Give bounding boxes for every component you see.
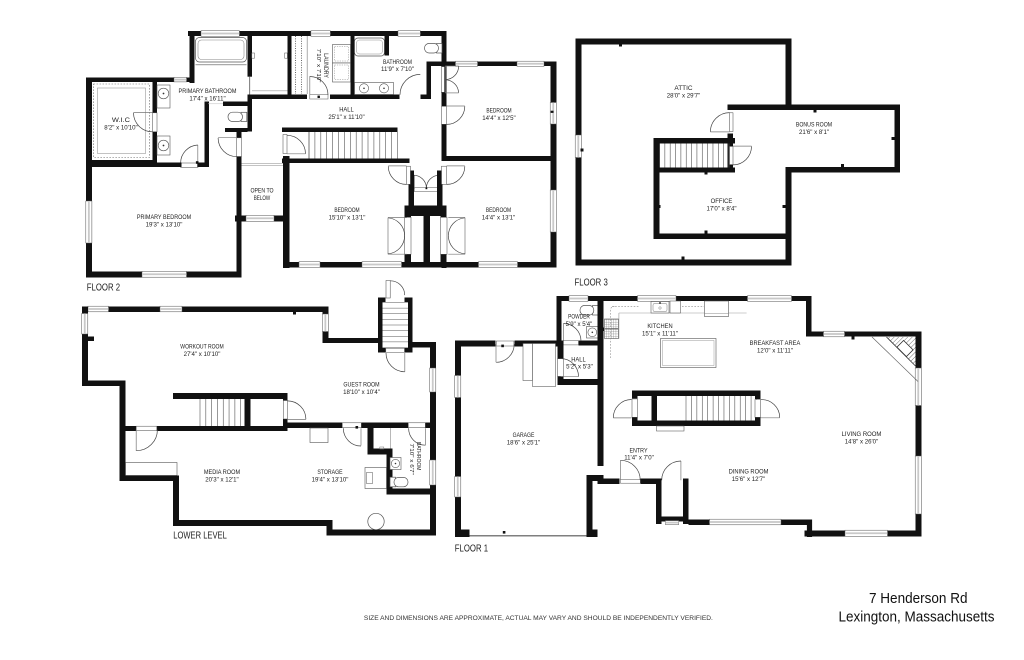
svg-text:7'10" x 7'10": 7'10" x 7'10" <box>315 49 321 83</box>
svg-text:19'3" x 13'10": 19'3" x 13'10" <box>146 222 183 229</box>
svg-text:PRIMARY BATHROOM: PRIMARY BATHROOM <box>179 88 237 95</box>
svg-text:20'3" x 12'1": 20'3" x 12'1" <box>205 477 238 484</box>
svg-text:DINING ROOM: DINING ROOM <box>729 469 769 476</box>
svg-text:7'10" x 6'7": 7'10" x 6'7" <box>408 444 414 475</box>
svg-text:5'9" x 5'4": 5'9" x 5'4" <box>566 321 593 328</box>
svg-text:14'4" x 13'1": 14'4" x 13'1" <box>482 215 515 222</box>
svg-text:BEDROOM: BEDROOM <box>334 207 359 214</box>
svg-text:SIZE AND DIMENSIONS ARE APPROX: SIZE AND DIMENSIONS ARE APPROXIMATE, ACT… <box>364 615 713 622</box>
svg-text:BEDROOM: BEDROOM <box>486 108 511 115</box>
svg-text:28'0" x 29'7": 28'0" x 29'7" <box>667 93 700 100</box>
svg-text:15'1" x 11'11": 15'1" x 11'11" <box>642 330 678 337</box>
svg-text:5'2" x 5'3": 5'2" x 5'3" <box>566 363 593 370</box>
svg-text:BATHROOM: BATHROOM <box>383 59 412 66</box>
svg-text:FLOOR 2: FLOOR 2 <box>87 282 121 293</box>
svg-text:GUEST ROOM: GUEST ROOM <box>343 382 379 389</box>
svg-text:19'4" x 13'10": 19'4" x 13'10" <box>312 477 349 484</box>
svg-text:8'2" x 10'10": 8'2" x 10'10" <box>104 125 137 132</box>
svg-text:LIVING ROOM: LIVING ROOM <box>842 431 882 438</box>
svg-text:18'10" x 10'4": 18'10" x 10'4" <box>343 389 380 396</box>
svg-text:12'0" x 11'11": 12'0" x 11'11" <box>757 348 793 355</box>
svg-text:21'6" x 8'1": 21'6" x 8'1" <box>799 129 829 136</box>
svg-text:OPEN TO: OPEN TO <box>250 188 273 195</box>
svg-text:STORAGE: STORAGE <box>317 469 342 476</box>
svg-text:BELOW: BELOW <box>254 195 271 202</box>
svg-text:WORKOUT ROOM: WORKOUT ROOM <box>180 344 223 351</box>
svg-text:ATTIC: ATTIC <box>674 85 692 92</box>
svg-text:KITCHEN: KITCHEN <box>647 323 673 330</box>
svg-text:LAUNDRY: LAUNDRY <box>322 53 329 78</box>
svg-text:27'4" x 10'10": 27'4" x 10'10" <box>184 351 221 358</box>
svg-text:25'1" x 11'10": 25'1" x 11'10" <box>328 114 364 121</box>
svg-text:MEDIA ROOM: MEDIA ROOM <box>204 469 240 476</box>
svg-text:17'4" x 16'11": 17'4" x 16'11" <box>189 95 225 102</box>
svg-text:PRIMARY BEDROOM: PRIMARY BEDROOM <box>137 214 191 221</box>
svg-text:HALL: HALL <box>339 107 354 114</box>
svg-text:17'0" x 8'4": 17'0" x 8'4" <box>706 206 736 213</box>
svg-text:BREAKFAST AREA: BREAKFAST AREA <box>750 340 801 347</box>
svg-text:14'8" x 26'0": 14'8" x 26'0" <box>845 439 878 446</box>
svg-text:Lexington, Massachusetts: Lexington, Massachusetts <box>839 609 995 625</box>
svg-text:11'9" x 7'10": 11'9" x 7'10" <box>381 66 414 73</box>
svg-text:15'10" x 13'1": 15'10" x 13'1" <box>329 215 366 222</box>
svg-text:18'6" x 25'1": 18'6" x 25'1" <box>507 440 540 447</box>
svg-text:LOWER LEVEL: LOWER LEVEL <box>173 531 227 542</box>
svg-text:FLOOR 3: FLOOR 3 <box>575 278 609 289</box>
svg-text:FLOOR 1: FLOOR 1 <box>455 543 489 554</box>
svg-text:HALL: HALL <box>571 356 586 363</box>
svg-text:BONUS ROOM: BONUS ROOM <box>796 122 832 129</box>
svg-text:BATHROOM: BATHROOM <box>415 442 421 471</box>
svg-text:11'4" x 7'0": 11'4" x 7'0" <box>624 454 654 461</box>
svg-text:BEDROOM: BEDROOM <box>486 207 511 214</box>
svg-text:ENTRY: ENTRY <box>629 447 648 454</box>
svg-text:GARAGE: GARAGE <box>513 432 535 439</box>
svg-text:W.I.C: W.I.C <box>112 117 131 124</box>
svg-text:OFFICE: OFFICE <box>711 198 733 205</box>
svg-text:15'6" x 12'7": 15'6" x 12'7" <box>732 476 765 483</box>
svg-text:14'4" x 12'5": 14'4" x 12'5" <box>482 115 515 122</box>
svg-text:POWDER: POWDER <box>568 314 590 321</box>
svg-text:7 Henderson Rd: 7 Henderson Rd <box>869 591 968 607</box>
